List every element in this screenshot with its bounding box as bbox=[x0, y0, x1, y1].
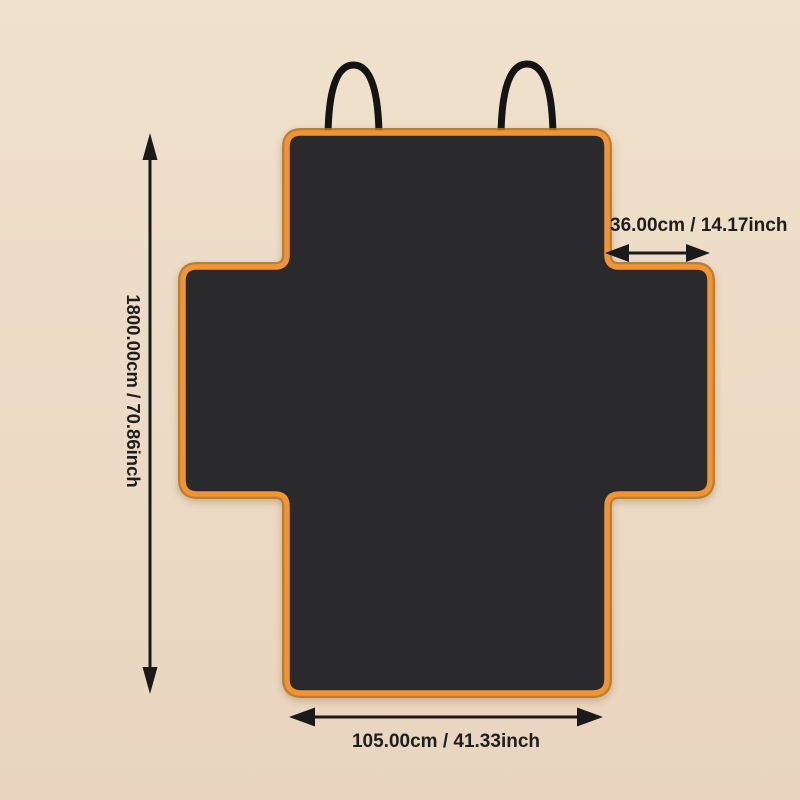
top-width-dimension: 36.00cm / 14.17inch bbox=[605, 215, 787, 262]
bottom-width-dimension: 105.00cm / 41.33inch bbox=[289, 708, 603, 753]
arrowhead-right-icon bbox=[577, 708, 603, 727]
product-dimension-diagram: 1800.00cm / 70.86inch 36.00cm / 14.17inc… bbox=[0, 0, 800, 800]
arrowhead-down-icon bbox=[143, 667, 158, 694]
seat-cover-diagram-svg: 1800.00cm / 70.86inch 36.00cm / 14.17inc… bbox=[0, 0, 800, 800]
arrowhead-left-icon bbox=[289, 708, 315, 727]
height-dimension: 1800.00cm / 70.86inch bbox=[123, 133, 158, 694]
bottom-width-label: 105.00cm / 41.33inch bbox=[352, 731, 540, 752]
top-width-label: 36.00cm / 14.17inch bbox=[610, 215, 787, 236]
height-label: 1800.00cm / 70.86inch bbox=[123, 294, 144, 487]
arrowhead-right-icon bbox=[686, 244, 710, 262]
arrowhead-up-icon bbox=[143, 133, 158, 160]
